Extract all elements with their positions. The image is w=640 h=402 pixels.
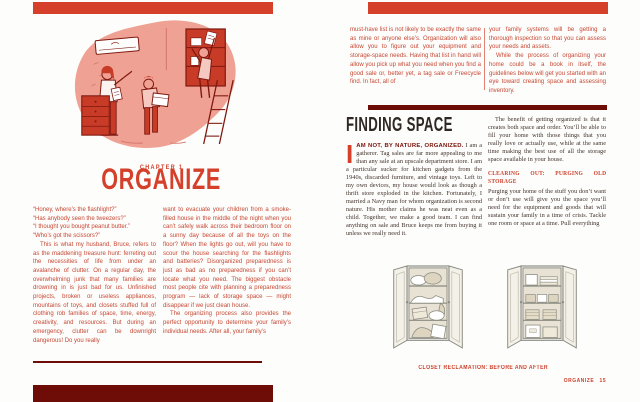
section-heading: FINDING SPACE bbox=[346, 116, 453, 134]
bottom-band-left bbox=[33, 385, 273, 402]
quote-line: “Honey, where’s the flashlight?” bbox=[33, 206, 156, 215]
top-band-right bbox=[368, 2, 608, 14]
family-organizing-illustration bbox=[70, 19, 242, 152]
paragraph: want to evacuate your children from a sm… bbox=[163, 206, 291, 310]
quote-line: “Who’s got the scissors?” bbox=[33, 232, 156, 241]
left-page: CHAPTER 1 ORGANIZE “Honey, where’s the f… bbox=[0, 0, 305, 402]
left-column-1: “Honey, where’s the flashlight?” “Has an… bbox=[33, 206, 156, 345]
right-top-column-1: must-have list is not likely to be exact… bbox=[350, 26, 481, 87]
paragraph: must-have list is not likely to be exact… bbox=[350, 26, 481, 87]
paragraph: The organizing process also provides the… bbox=[163, 310, 291, 336]
lead-in: AM NOT, BY NATURE, ORGANIZED. bbox=[356, 143, 463, 149]
column-divider bbox=[484, 28, 485, 90]
quote-line: “Has anybody seen the tweezers?” bbox=[33, 215, 156, 224]
book-spread: CHAPTER 1 ORGANIZE “Honey, where’s the f… bbox=[0, 0, 640, 402]
footer-rule bbox=[33, 361, 262, 363]
drop-cap: I bbox=[346, 143, 353, 165]
paragraph: This is what my husband, Bruce, refers t… bbox=[33, 241, 156, 345]
paragraph: your family systems will be getting a th… bbox=[489, 26, 606, 52]
body-column-2: The benefit of getting organized is that… bbox=[488, 116, 606, 228]
body-column-1: IAM NOT, BY NATURE, ORGANIZED. I am a ga… bbox=[346, 142, 482, 238]
chapter-title: ORGANIZE bbox=[102, 166, 222, 194]
subheading: CLEARING OUT: PURGING OLD STORAGE bbox=[488, 170, 606, 185]
paragraph: While the process of organizing your hom… bbox=[489, 52, 606, 96]
left-column-2: want to evacuate your children from a sm… bbox=[163, 206, 291, 337]
body-text: I am a gatherer. Tag sales are far more … bbox=[346, 142, 482, 237]
running-footer: ORGANIZE15 bbox=[564, 378, 606, 384]
right-page: must-have list is not likely to be exact… bbox=[305, 0, 640, 402]
section-rule bbox=[368, 105, 607, 110]
footer-chapter-label: ORGANIZE bbox=[564, 378, 594, 384]
page-number: 15 bbox=[599, 378, 606, 384]
paragraph: Purging your home of the stuff you don’t… bbox=[488, 188, 606, 228]
paragraph: The benefit of getting organized is that… bbox=[488, 116, 606, 164]
quote-line: “I thought you bought peanut butter.” bbox=[33, 223, 156, 232]
closet-before-illustration bbox=[388, 260, 468, 352]
top-band-left bbox=[33, 2, 273, 14]
closet-after-illustration bbox=[502, 260, 582, 352]
right-top-column-2: your family systems will be getting a th… bbox=[489, 26, 606, 96]
